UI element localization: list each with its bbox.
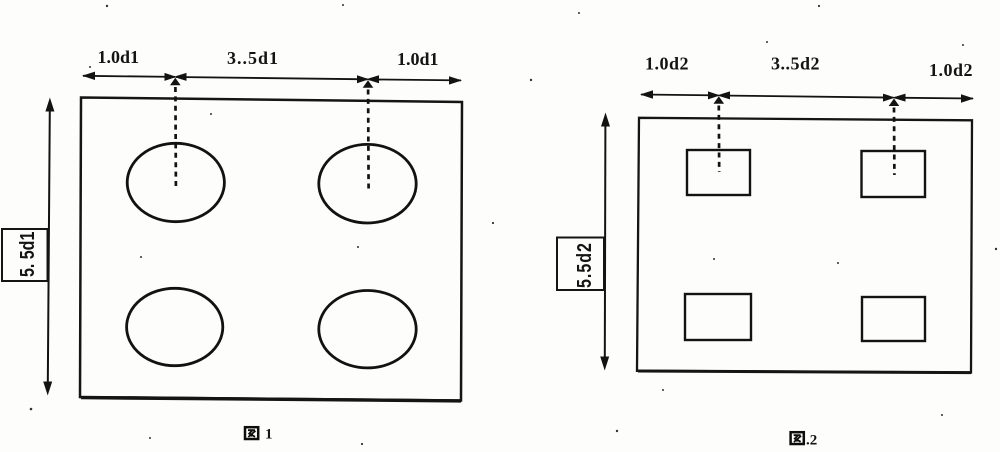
svg-text:3..5d1: 3..5d1	[227, 48, 279, 68]
svg-text:3..5d2: 3..5d2	[771, 54, 820, 74]
svg-text:1.0d1: 1.0d1	[397, 49, 439, 69]
svg-text:1.0d1: 1.0d1	[98, 47, 140, 67]
svg-text:5.5d2: 5.5d2	[573, 242, 595, 288]
svg-text:1.0d2: 1.0d2	[645, 54, 689, 74]
svg-text:.2: .2	[806, 433, 817, 449]
svg-text:1.0d2: 1.0d2	[929, 60, 973, 80]
svg-text:5. 5d1: 5. 5d1	[16, 232, 38, 277]
svg-text:1: 1	[265, 427, 273, 443]
